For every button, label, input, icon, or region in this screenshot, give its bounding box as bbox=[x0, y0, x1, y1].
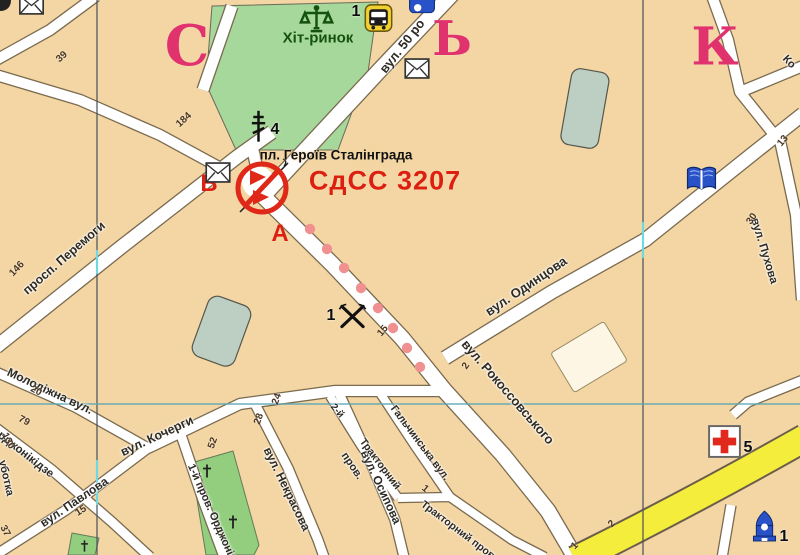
scales-icon bbox=[299, 5, 334, 34]
street-name-label: Молодіжна вул. bbox=[5, 365, 95, 417]
house-number: 79 bbox=[17, 414, 32, 429]
grid-sector-letter: Ь bbox=[432, 11, 472, 67]
marker-code-label: СдСС 3207 bbox=[309, 166, 461, 197]
street-name-label: вул. Одинцова bbox=[482, 253, 569, 319]
corner-symbol-fragment-icon bbox=[0, 0, 14, 12]
house-number: 52 bbox=[206, 436, 220, 450]
street-name-label: вул. Кочерги bbox=[118, 413, 195, 459]
grave-cross-icon bbox=[202, 464, 212, 478]
poi-number: 1 bbox=[352, 3, 361, 21]
house-number: 2 bbox=[460, 361, 472, 372]
house-number: 1 bbox=[569, 540, 581, 552]
street-name-label: Ко bbox=[780, 53, 798, 71]
house-number: 28 bbox=[252, 412, 266, 426]
street-name-label: Гальчинська вул. bbox=[388, 403, 452, 483]
house-number: 146 bbox=[7, 259, 26, 279]
grid-sector-letter: С bbox=[165, 13, 210, 79]
street-name-label: Тракторний пров. bbox=[419, 499, 500, 555]
street-name-label: просп. Перемоги bbox=[20, 219, 108, 298]
church-cross-icon bbox=[249, 109, 268, 144]
grave-cross-icon bbox=[80, 540, 89, 552]
poi-number: 1 bbox=[327, 307, 336, 325]
poi-number: 4 bbox=[271, 121, 280, 139]
street-name-label: 2-й bbox=[328, 402, 346, 421]
house-number: 13 bbox=[775, 133, 791, 149]
envelope-icon bbox=[404, 58, 430, 79]
poi-number: 1 bbox=[780, 528, 789, 546]
envelope-icon bbox=[19, 0, 44, 15]
pickaxes-icon bbox=[338, 303, 367, 330]
house-number: 39 bbox=[54, 49, 70, 65]
street-name-label: 1-й пров. Орджонікідзе bbox=[185, 462, 247, 555]
house-number: 1 bbox=[419, 483, 430, 495]
street-name-label: вул. Рокоссовського bbox=[459, 337, 558, 447]
street-name-label: уботка bbox=[0, 459, 16, 497]
map-canvas[interactable]: СдСС 3207 А В пл. Героїв Сталінграда Хіт… bbox=[0, 0, 800, 555]
grid-sector-letter: К bbox=[691, 17, 738, 78]
street-name-label: вул. Некрасова bbox=[261, 445, 314, 533]
square-name-label: пл. Героїв Сталінграда bbox=[260, 148, 413, 163]
dome-icon bbox=[752, 510, 777, 545]
book-icon bbox=[686, 164, 717, 194]
poi-number: 5 bbox=[744, 439, 753, 457]
envelope-icon bbox=[205, 162, 231, 183]
house-number: 15 bbox=[375, 323, 391, 339]
house-number: 2 bbox=[606, 518, 618, 530]
bus-icon bbox=[364, 4, 393, 32]
marker-point-a: А bbox=[271, 220, 288, 248]
hospital-icon bbox=[708, 425, 741, 458]
grave-cross-icon bbox=[228, 515, 238, 529]
street-name-label: вул. Павлова bbox=[37, 474, 110, 530]
transit-icon bbox=[409, 0, 435, 14]
house-number: 24 bbox=[270, 392, 284, 406]
labels-layer: СдСС 3207 А В пл. Героїв Сталінграда Хіт… bbox=[0, 0, 800, 555]
house-number: 37 bbox=[0, 524, 12, 539]
house-number: 184 bbox=[174, 110, 194, 129]
